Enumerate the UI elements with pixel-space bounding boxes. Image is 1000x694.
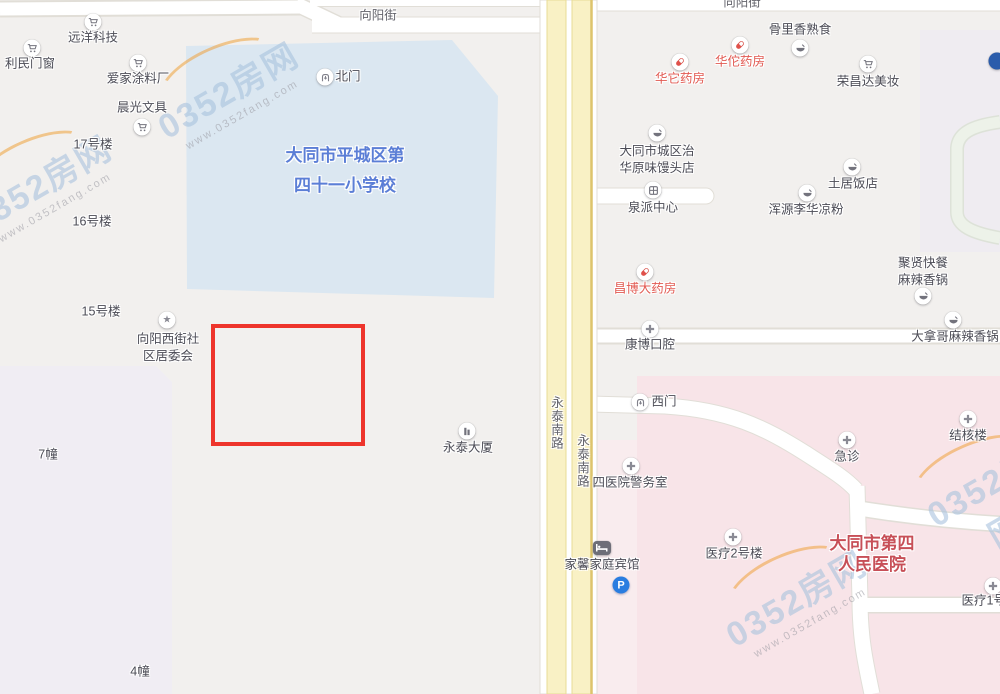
road-label-xiangyang-street-west: 向阳街 xyxy=(359,8,397,25)
hospital-area xyxy=(593,376,1000,694)
school-label: 大同市平城区第四十一小学校 xyxy=(286,141,405,201)
poi-label-jiaxin-family-hotel: 家馨家庭宾馆 xyxy=(564,557,639,574)
pill-icon[interactable] xyxy=(637,264,654,281)
poi-label-medical-building-2: 医疗2号楼 xyxy=(706,546,763,563)
poi-label-hospital-police-office: 四医院警务室 xyxy=(592,475,667,492)
shopping-cart-icon[interactable] xyxy=(134,119,151,136)
poi-label-yongtai-tower: 永泰大厦 xyxy=(443,440,493,457)
restaurant-icon[interactable] xyxy=(915,288,932,305)
yellow-road xyxy=(540,0,597,694)
shopping-cart-icon[interactable] xyxy=(130,55,147,72)
bed-icon[interactable] xyxy=(593,541,611,555)
road-label-yongtai-south-road-1: 永泰南路 xyxy=(549,396,563,450)
storefront-icon[interactable] xyxy=(645,182,662,199)
building-icon[interactable] xyxy=(459,423,476,440)
hospital-label: 大同市第四人民医院 xyxy=(830,533,915,575)
poi-label-medical-building-1: 医疗1号楼 xyxy=(962,593,1000,610)
shopping-cart-icon[interactable] xyxy=(85,14,102,31)
poi-label-changbo-pharmacy: 昌博大药房 xyxy=(614,281,677,298)
medical-cross-icon[interactable] xyxy=(725,529,742,546)
poi-label-limin-doors: 利民门窗 xyxy=(5,56,55,73)
restaurant-icon[interactable] xyxy=(792,40,809,57)
star-icon[interactable]: ★ xyxy=(159,312,176,329)
shopping-cart-icon[interactable] xyxy=(24,40,41,57)
poi-label-emergency: 急诊 xyxy=(834,449,859,466)
poi-label-building-7: 7幢 xyxy=(38,447,57,464)
restaurant-icon[interactable] xyxy=(844,159,861,176)
poi-label-tuju-restaurant: 土居饭店 xyxy=(828,176,878,193)
shopping-cart-icon[interactable] xyxy=(860,56,877,73)
poi-label-yuanyang-tech: 远洋科技 xyxy=(68,30,118,47)
gate-icon[interactable] xyxy=(632,394,649,411)
pill-icon[interactable] xyxy=(672,54,689,71)
poi-label-building-15: 15号楼 xyxy=(82,304,121,321)
poi-label-hunyuan-liangfen: 浑源李华凉粉 xyxy=(768,202,843,219)
highlight-rectangle xyxy=(211,324,365,446)
map-canvas[interactable]: 0352房网 www.0352fang.com 0352房网 www.0352f… xyxy=(0,0,1000,694)
residential-area xyxy=(0,366,172,694)
poi-label-chenguang-stationery: 晨光文具 xyxy=(117,100,167,117)
restaurant-icon[interactable] xyxy=(649,125,666,142)
restaurant-icon[interactable] xyxy=(945,312,962,329)
medical-cross-icon[interactable] xyxy=(623,458,640,475)
parking-icon[interactable]: P xyxy=(613,577,630,594)
poi-label-building-16: 16号楼 xyxy=(73,214,112,231)
poi-label-building-17: 17号楼 xyxy=(74,137,113,154)
poi-label-north-gate: 北门 xyxy=(335,69,360,86)
medical-cross-icon[interactable] xyxy=(960,411,977,428)
medical-cross-icon[interactable] xyxy=(839,432,856,449)
poi-label-xiangyang-west-committee: 向阳西街社区居委会 xyxy=(137,331,200,365)
road-label-yongtai-south-road-2: 永泰南路 xyxy=(575,434,589,488)
medical-cross-icon[interactable] xyxy=(642,321,659,338)
poi-label-juxian-restaurant: 聚贤快餐麻辣香锅 xyxy=(898,255,948,289)
poi-label-mantou-shop: 大同市城区治华原味馒头店 xyxy=(619,143,694,177)
pill-icon[interactable] xyxy=(732,37,749,54)
poi-dot-icon[interactable] xyxy=(989,53,1000,70)
road-label-xiangyang-street-east: 向阳街 xyxy=(723,0,761,12)
poi-label-huatuo-pharmacy: 华佗药房 xyxy=(715,54,765,71)
poi-label-tuberculosis-building: 结核楼 xyxy=(949,428,987,445)
poi-label-danage-malaxiangguo: 大拿哥麻辣香锅 xyxy=(911,329,999,346)
poi-label-huata-pharmacy: 华它药房 xyxy=(655,71,705,88)
gate-icon[interactable] xyxy=(317,69,334,86)
poi-label-quanpai-center: 泉派中心 xyxy=(628,200,678,217)
poi-label-gulixiang-deli: 骨里香熟食 xyxy=(769,22,832,39)
restaurant-icon[interactable] xyxy=(799,185,816,202)
poi-label-rongchangda-beauty: 荣昌达美妆 xyxy=(837,74,900,91)
poi-label-aijia-paint: 爱家涂料厂 xyxy=(107,71,170,88)
poi-label-kangbo-dental: 康博口腔 xyxy=(625,337,675,354)
poi-label-building-4: 4幢 xyxy=(130,664,149,681)
poi-label-west-gate: 西门 xyxy=(651,394,676,411)
